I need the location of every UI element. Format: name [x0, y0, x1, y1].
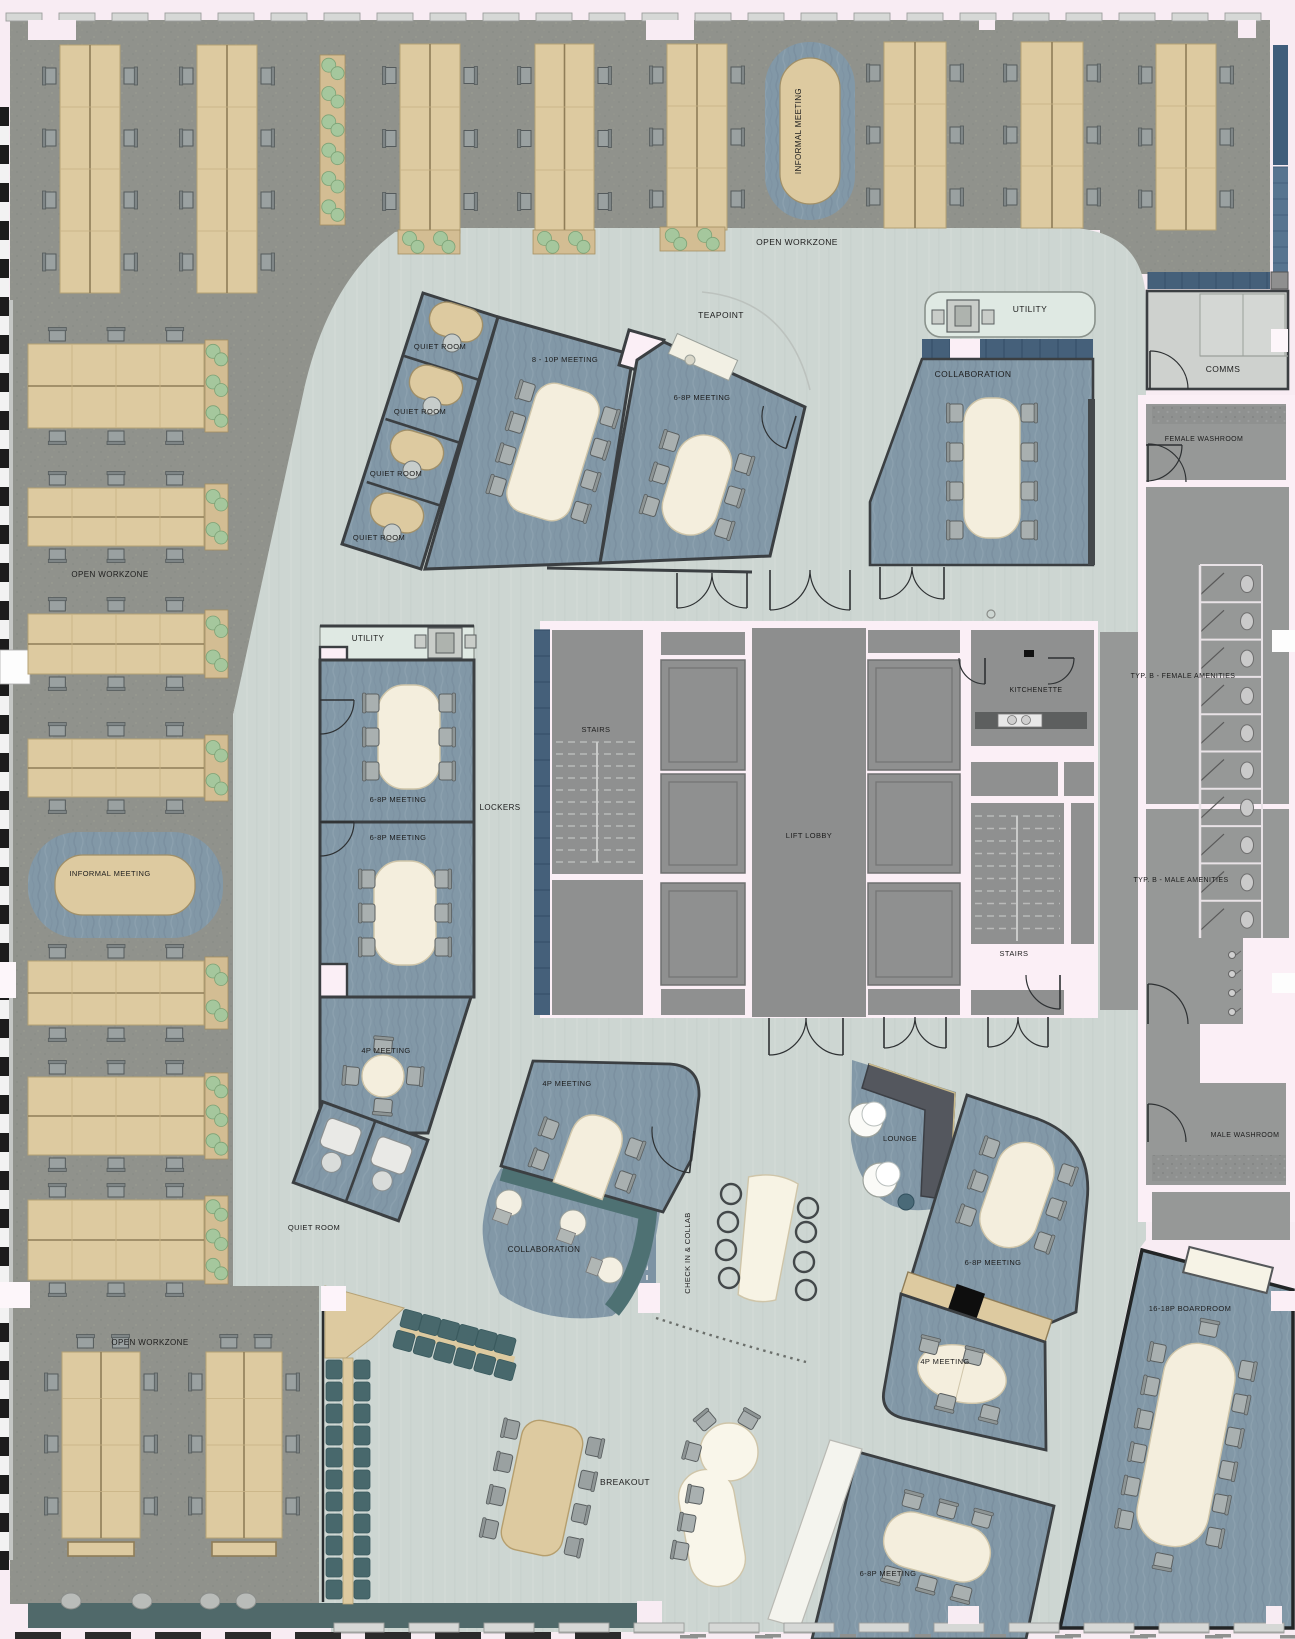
svg-text:4P MEETING: 4P MEETING — [361, 1046, 410, 1055]
svg-text:LIFT LOBBY: LIFT LOBBY — [786, 831, 832, 840]
svg-text:UTILITY: UTILITY — [1013, 304, 1047, 314]
svg-text:6-8P MEETING: 6-8P MEETING — [860, 1569, 917, 1578]
svg-text:16-18P BOARDROOM: 16-18P BOARDROOM — [1149, 1304, 1232, 1313]
svg-text:QUIET ROOM: QUIET ROOM — [370, 469, 422, 478]
svg-text:QUIET ROOM: QUIET ROOM — [414, 342, 466, 351]
svg-text:4P MEETING: 4P MEETING — [920, 1357, 969, 1366]
svg-text:6-8P MEETING: 6-8P MEETING — [370, 833, 427, 842]
svg-text:MALE WASHROOM: MALE WASHROOM — [1211, 1132, 1280, 1139]
svg-text:QUIET ROOM: QUIET ROOM — [288, 1223, 340, 1232]
svg-text:TEAPOINT: TEAPOINT — [698, 310, 744, 320]
svg-text:6-8P MEETING: 6-8P MEETING — [674, 393, 731, 402]
svg-text:COLLABORATION: COLLABORATION — [935, 369, 1012, 379]
svg-text:INFORMAL MEETING: INFORMAL MEETING — [794, 88, 803, 174]
svg-text:KITCHENETTE: KITCHENETTE — [1009, 687, 1062, 694]
svg-text:6-8P MEETING: 6-8P MEETING — [965, 1258, 1022, 1267]
svg-text:INFORMAL MEETING: INFORMAL MEETING — [69, 869, 150, 878]
svg-text:OPEN WORKZONE: OPEN WORKZONE — [71, 570, 148, 579]
svg-text:CHECK IN & COLLAB: CHECK IN & COLLAB — [683, 1212, 692, 1293]
svg-text:COLLABORATION: COLLABORATION — [508, 1245, 581, 1254]
svg-text:UTILITY: UTILITY — [352, 634, 385, 643]
svg-text:FEMALE WASHROOM: FEMALE WASHROOM — [1165, 436, 1243, 443]
svg-text:LOCKERS: LOCKERS — [479, 803, 520, 812]
svg-text:4P MEETING: 4P MEETING — [542, 1079, 591, 1088]
svg-text:QUIET ROOM: QUIET ROOM — [394, 407, 446, 416]
svg-text:STAIRS: STAIRS — [582, 725, 611, 734]
svg-text:BREAKOUT: BREAKOUT — [600, 1477, 650, 1487]
svg-text:OPEN WORKZONE: OPEN WORKZONE — [111, 1338, 188, 1347]
svg-text:QUIET ROOM: QUIET ROOM — [353, 533, 405, 542]
svg-text:TYP. B - FEMALE AMENITIES: TYP. B - FEMALE AMENITIES — [1131, 673, 1236, 680]
svg-text:OPEN WORKZONE: OPEN WORKZONE — [756, 237, 838, 247]
svg-text:STAIRS: STAIRS — [1000, 949, 1029, 958]
svg-text:COMMS: COMMS — [1206, 364, 1241, 374]
svg-text:8 - 10P MEETING: 8 - 10P MEETING — [532, 355, 598, 364]
svg-text:TYP. B - MALE AMENITIES: TYP. B - MALE AMENITIES — [1133, 877, 1228, 884]
svg-text:6-8P MEETING: 6-8P MEETING — [370, 795, 427, 804]
svg-text:LOUNGE: LOUNGE — [883, 1134, 917, 1143]
